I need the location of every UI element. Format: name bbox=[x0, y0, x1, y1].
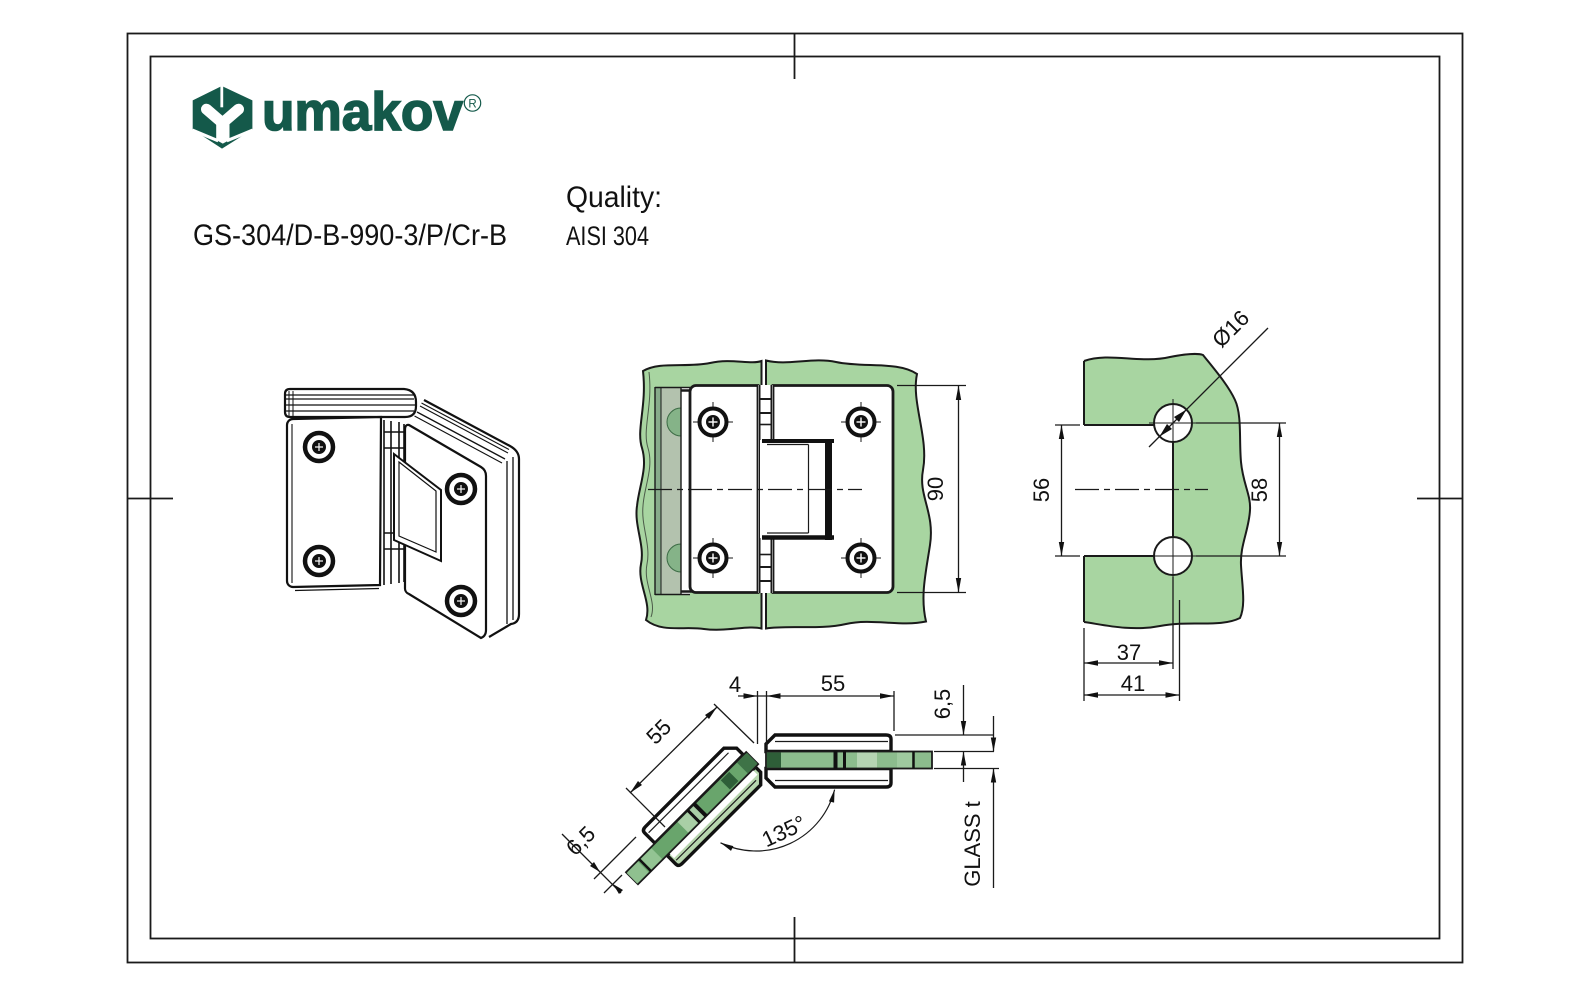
svg-text:GLASS t: GLASS t bbox=[960, 801, 985, 887]
svg-text:6,5: 6,5 bbox=[930, 689, 955, 720]
svg-text:Quality:: Quality: bbox=[566, 181, 662, 214]
svg-text:R: R bbox=[468, 99, 476, 111]
svg-text:41: 41 bbox=[1121, 671, 1145, 696]
svg-text:58: 58 bbox=[1247, 478, 1272, 502]
svg-text:55: 55 bbox=[821, 671, 845, 696]
svg-text:90: 90 bbox=[923, 477, 948, 501]
svg-text:37: 37 bbox=[1117, 640, 1141, 665]
svg-text:umakov: umakov bbox=[262, 82, 463, 142]
svg-text:AISI 304: AISI 304 bbox=[566, 221, 649, 251]
svg-text:GS-304/D-B-990-3/P/Cr-B: GS-304/D-B-990-3/P/Cr-B bbox=[193, 219, 507, 252]
svg-text:4: 4 bbox=[729, 672, 741, 697]
svg-text:56: 56 bbox=[1029, 478, 1054, 502]
